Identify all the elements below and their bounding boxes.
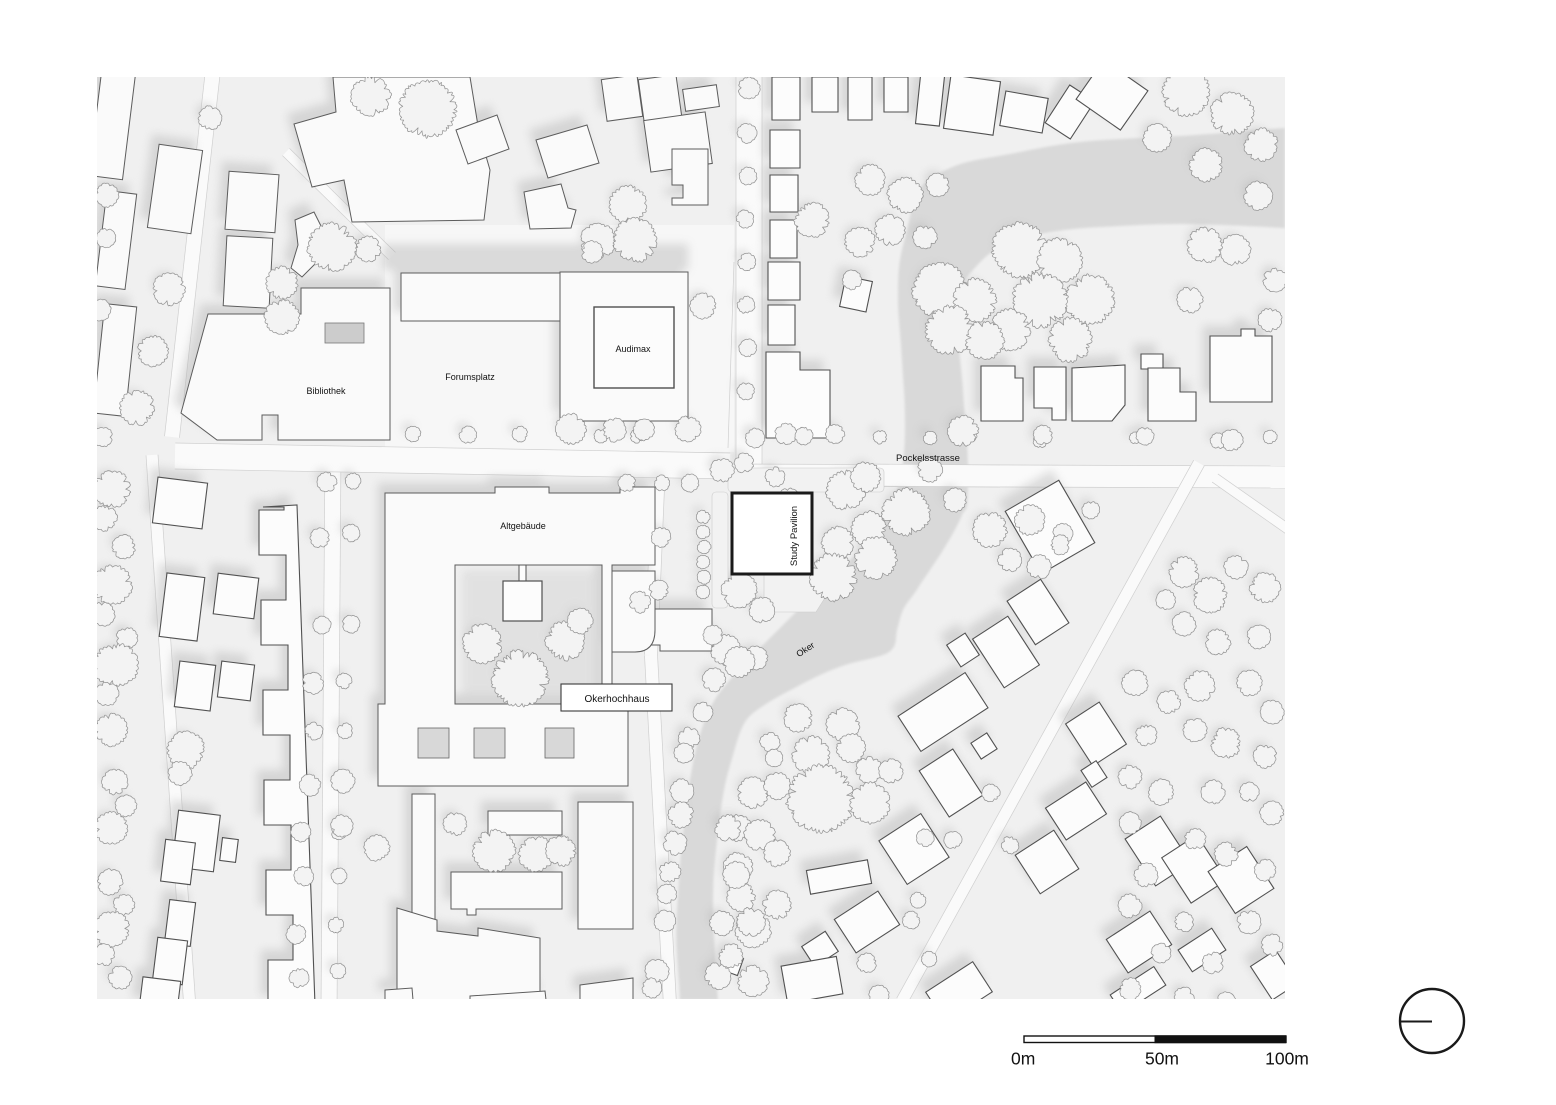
svg-text:100m: 100m [1265, 1049, 1309, 1069]
svg-text:Altgebäude: Altgebäude [500, 521, 546, 531]
svg-text:Okerhochhaus: Okerhochhaus [584, 694, 649, 705]
svg-text:Forumsplatz: Forumsplatz [445, 372, 495, 382]
svg-text:Bibliothek: Bibliothek [306, 386, 346, 396]
svg-text:Study Pavilion: Study Pavilion [789, 506, 800, 566]
svg-text:Audimax: Audimax [615, 344, 651, 354]
svg-text:50m: 50m [1145, 1049, 1179, 1069]
svg-text:0m: 0m [1011, 1049, 1035, 1069]
svg-text:Pockelsstrasse: Pockelsstrasse [896, 453, 960, 464]
